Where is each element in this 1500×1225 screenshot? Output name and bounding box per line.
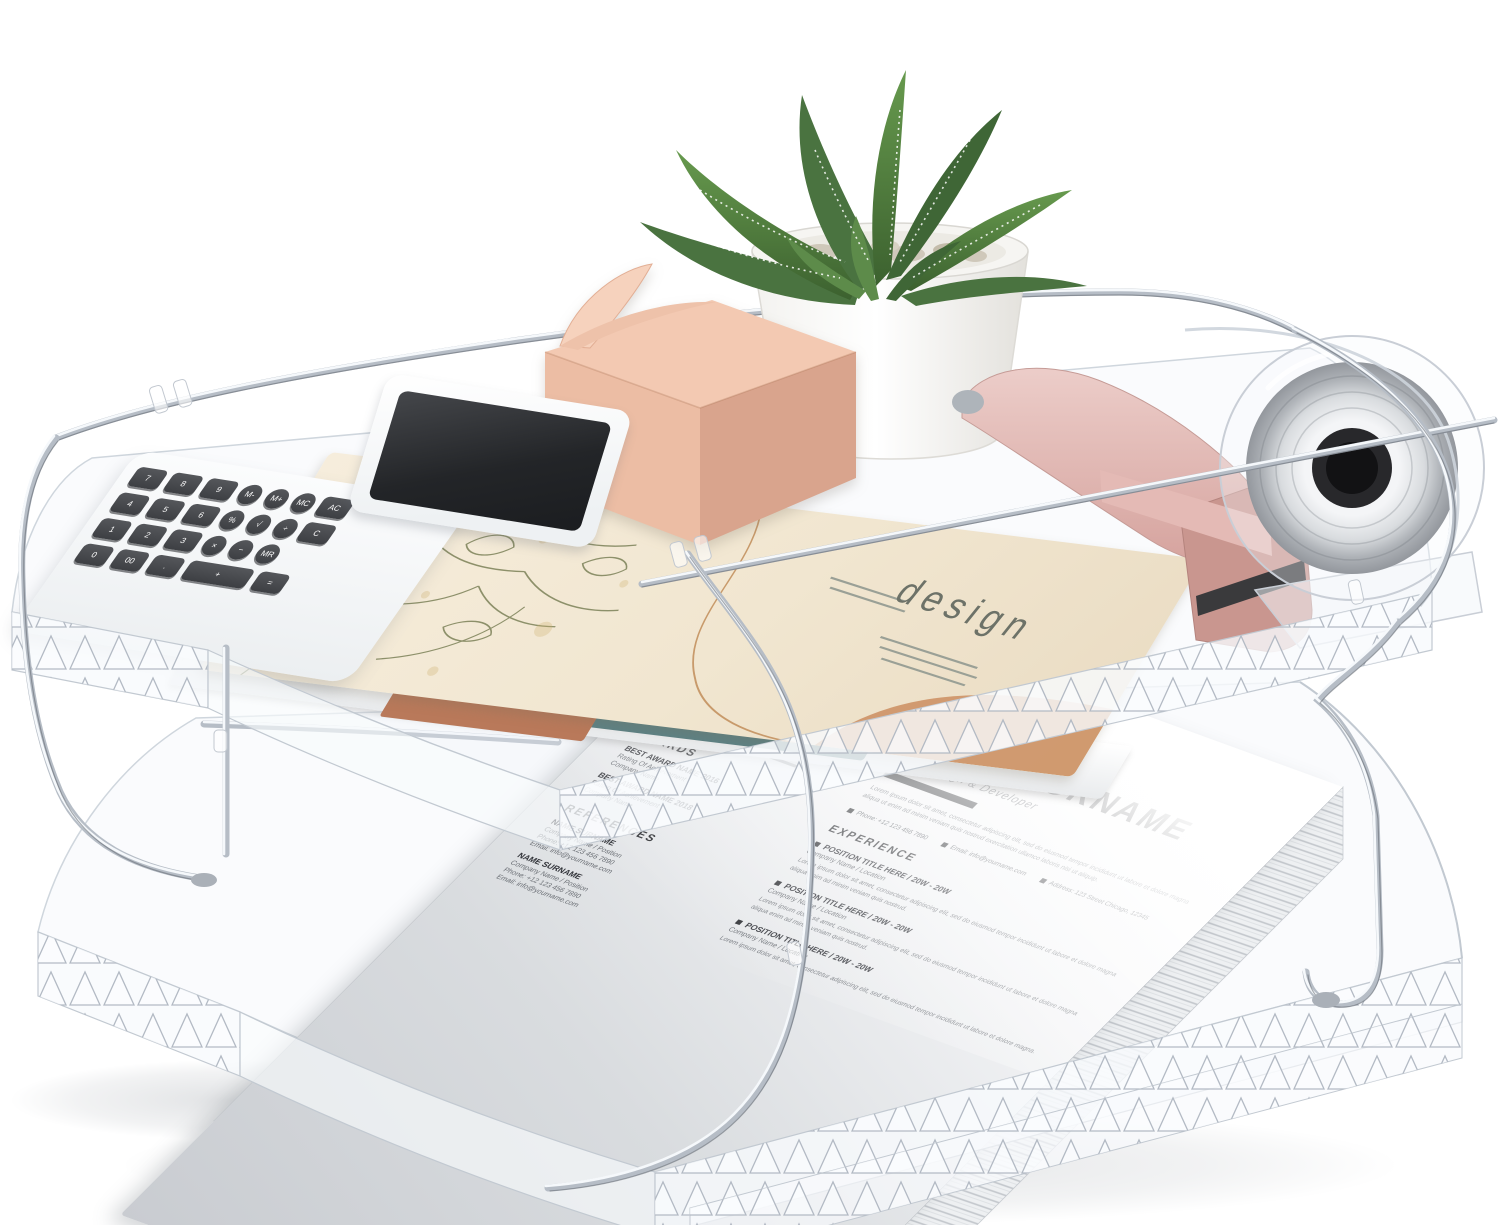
tape-base xyxy=(1255,552,1482,648)
calculator-keypad: 7 8 9 M- M+ MC AC 4 5 6 % √ ÷ C xyxy=(12,450,474,684)
calc-key: × xyxy=(197,534,231,556)
floor-shadow xyxy=(120,1103,1400,1225)
magazine-leaf-art xyxy=(199,452,1203,777)
right-support-wire xyxy=(1304,620,1400,1007)
reference-item: NAME SURNAME Company Name / Position Pho… xyxy=(528,818,744,914)
resume-section-references: REFERENCES xyxy=(561,803,758,881)
background-trays-layer xyxy=(0,0,1500,1225)
rail-clip xyxy=(172,379,192,409)
cube-right-face xyxy=(700,352,856,545)
stapler-front-wedge xyxy=(1100,470,1272,556)
calc-key: M- xyxy=(233,483,267,505)
contact-phone: Phone: +12 123 456 7890 xyxy=(845,807,929,841)
stapler-base xyxy=(1180,470,1312,652)
front-rim-wire xyxy=(642,418,1494,587)
succulent-plant xyxy=(640,70,1087,459)
calculator: 7 8 9 M- M+ MC AC 4 5 6 % √ ÷ C xyxy=(138,390,628,670)
calc-key: 8 xyxy=(162,472,205,496)
tape-roll xyxy=(1246,362,1458,574)
front-center-wire xyxy=(546,552,814,1191)
skill-row: Skill Name 4 xyxy=(655,713,848,787)
sticky-note-cube xyxy=(545,264,856,545)
bullet-icon xyxy=(734,920,743,926)
calc-key: + xyxy=(179,560,256,589)
calc-key: % xyxy=(215,509,249,531)
leg-clip xyxy=(214,730,227,752)
tape-hub xyxy=(1312,428,1392,508)
calc-key: M+ xyxy=(260,488,294,510)
resume-section-experience: EXPERIENCE xyxy=(825,824,1152,949)
calc-key: 00 xyxy=(108,549,151,573)
bullet-icon xyxy=(773,881,782,887)
paper-stack-right-face xyxy=(797,787,1343,1225)
sticky-notes-layer xyxy=(0,0,1500,1225)
address-icon xyxy=(1039,878,1048,884)
experience-item: POSITION TITLE HERE / 20W - 20W Company … xyxy=(716,918,1058,1058)
magazine-deco-line xyxy=(830,587,906,612)
pot-rim xyxy=(752,223,1028,279)
skill-row: Skill Name 3 xyxy=(665,703,858,777)
magazine-wavy-line xyxy=(626,495,931,743)
floor-shadow-left xyxy=(10,1060,450,1140)
plant-layer xyxy=(0,0,1500,1225)
stapler-hinge xyxy=(952,390,984,414)
calc-key: MR xyxy=(251,543,285,565)
calc-key: . xyxy=(144,554,187,578)
phone-icon xyxy=(846,808,855,814)
stapler-arm xyxy=(962,368,1276,568)
tape-dispenser xyxy=(1220,336,1484,648)
calc-key: 0 xyxy=(73,543,116,567)
cube-front-face xyxy=(545,352,700,545)
resume-section-education: EDUCATION xyxy=(748,616,945,694)
calc-key: √ xyxy=(242,513,276,535)
email-icon xyxy=(940,842,949,848)
bottom-tray-surface xyxy=(38,682,1462,1172)
resume-top-sheet: EDUCATION 2012 BACHELOR GRADUATE / MAJOR… xyxy=(120,575,1342,1225)
top-tray-surface xyxy=(12,348,1432,790)
calc-key: AC xyxy=(313,496,356,520)
bottom-back-rail xyxy=(204,722,558,742)
paper-stack-front-face xyxy=(214,1121,797,1225)
bottom-tray-right-edge xyxy=(1300,682,1462,958)
magazine-deco-line xyxy=(881,658,966,686)
calc-key: C xyxy=(295,522,338,546)
top-tier-front-layer xyxy=(0,0,1500,1225)
calc-key: = xyxy=(248,571,291,595)
reference-item: NAME SURNAME Company Name / Position Pho… xyxy=(494,851,710,947)
bottom-tier-front-layer xyxy=(0,0,1500,1225)
resume-divider-bar xyxy=(882,770,978,808)
magazine-terracotta-band xyxy=(379,662,615,741)
plant-pot xyxy=(752,231,1028,459)
pot-soil xyxy=(774,231,1006,273)
bottom-tray-front-lip xyxy=(38,682,1462,1225)
experience-item: POSITION TITLE HERE / 20W - 20W Company … xyxy=(747,879,1097,1027)
back-rail-wire xyxy=(56,290,1295,441)
top-tray-right-wall xyxy=(1185,328,1458,606)
tape-housing xyxy=(1220,336,1484,600)
cube-top-face xyxy=(545,300,856,408)
magazine-teal-band xyxy=(436,652,897,761)
award-item: BEST AWARD NAME 2018 Rating Of Achieveme… xyxy=(581,771,790,860)
calculator-screen xyxy=(368,390,612,532)
bullet-icon xyxy=(813,842,822,848)
calc-key: 2 xyxy=(126,523,169,547)
calc-key: 7 xyxy=(126,466,169,490)
center-clip xyxy=(669,541,688,569)
top-tray-front-lip xyxy=(12,592,1432,850)
wire-foot xyxy=(1312,992,1340,1008)
paper-stack-left-face xyxy=(214,575,760,1195)
resume-right-column: NAME SURNAME Web Design & Developer Lore… xyxy=(703,681,1294,1070)
magazine-coral-patch xyxy=(815,675,1115,777)
magazine-deco-line xyxy=(830,577,906,602)
rail-clip xyxy=(148,385,168,415)
skill-row: Skill Name 1 xyxy=(685,683,878,757)
resume-section-awards: AWARDS xyxy=(634,730,831,808)
calculator-display-flap xyxy=(347,373,634,549)
resume-summary: Lorem ipsum dolor sit amet, consectetur … xyxy=(859,784,1192,915)
calc-key: ÷ xyxy=(268,517,302,539)
leaf-stripes xyxy=(700,110,1040,278)
design-magazine-cover: design xyxy=(199,452,1203,777)
succulent-leaves xyxy=(640,70,1087,306)
calc-key: − xyxy=(224,539,258,561)
cube-curled-sheet xyxy=(560,264,652,348)
center-clip xyxy=(693,535,712,563)
product-photo-scene: EDUCATION 2012 BACHELOR GRADUATE / MAJOR… xyxy=(0,0,1500,1225)
magazine-title: design xyxy=(886,570,1047,650)
calc-key: MC xyxy=(286,492,320,514)
resume-section-skills: SKILLS xyxy=(695,669,892,747)
tape-glint xyxy=(1268,352,1352,388)
experience-item: POSITION TITLE HERE / 20W - 20W Company … xyxy=(786,840,1136,988)
magazine-under-pages xyxy=(168,632,1133,799)
paper-highlight xyxy=(466,575,1343,1081)
cube-top-sheet-edge xyxy=(560,302,716,350)
paper-stack-layer xyxy=(0,0,1500,1225)
resume-role: Web Design & Developer xyxy=(895,753,1222,878)
award-item: BEST AWARD NAME 2016 Rating Of Achieveme… xyxy=(608,744,817,833)
resume-name: NAME SURNAME xyxy=(908,724,1252,866)
magazine-deco-line xyxy=(880,636,978,668)
resume-left-column: EDUCATION 2012 BACHELOR GRADUATE / MAJOR… xyxy=(494,606,956,948)
pot-pebbles xyxy=(802,240,987,265)
center-clip xyxy=(786,941,803,966)
skill-row: Skill Name 2 xyxy=(675,693,868,767)
wall-clip xyxy=(1348,579,1365,605)
calc-key: 6 xyxy=(179,503,222,527)
contact-address: Address: 123 Street Chicago, 12345 xyxy=(1038,877,1150,921)
calc-key: 4 xyxy=(108,492,151,516)
calc-key: 3 xyxy=(162,529,205,553)
magazine-deco-line xyxy=(879,646,977,678)
wire-foot xyxy=(191,873,217,887)
right-side-wire xyxy=(1293,328,1455,625)
left-support-wire xyxy=(20,436,202,881)
calc-key: 9 xyxy=(197,478,240,502)
stapler-slot xyxy=(1196,560,1306,616)
contact-email: Email: info@yourname.com xyxy=(939,841,1028,877)
resume-contact-row: Phone: +12 123 456 7890 Email: info@your… xyxy=(845,807,1168,928)
stapler xyxy=(952,368,1312,652)
front-left-leg-wire xyxy=(224,648,226,854)
calc-key: 1 xyxy=(91,517,134,541)
calc-key: 5 xyxy=(144,498,187,522)
